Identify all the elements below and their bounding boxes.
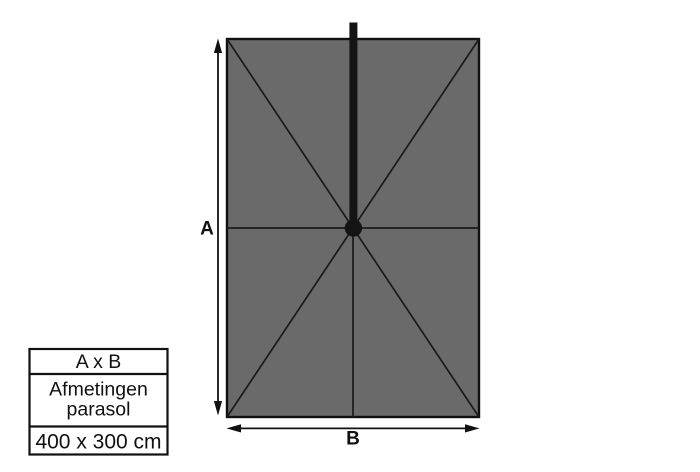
svg-text:A x B: A x B — [76, 351, 122, 373]
svg-text:parasol: parasol — [67, 399, 131, 421]
svg-text:Afmetingen: Afmetingen — [49, 379, 148, 401]
svg-text:A: A — [200, 219, 214, 240]
svg-text:B: B — [346, 429, 360, 450]
svg-text:400 x 300 cm: 400 x 300 cm — [35, 431, 161, 454]
